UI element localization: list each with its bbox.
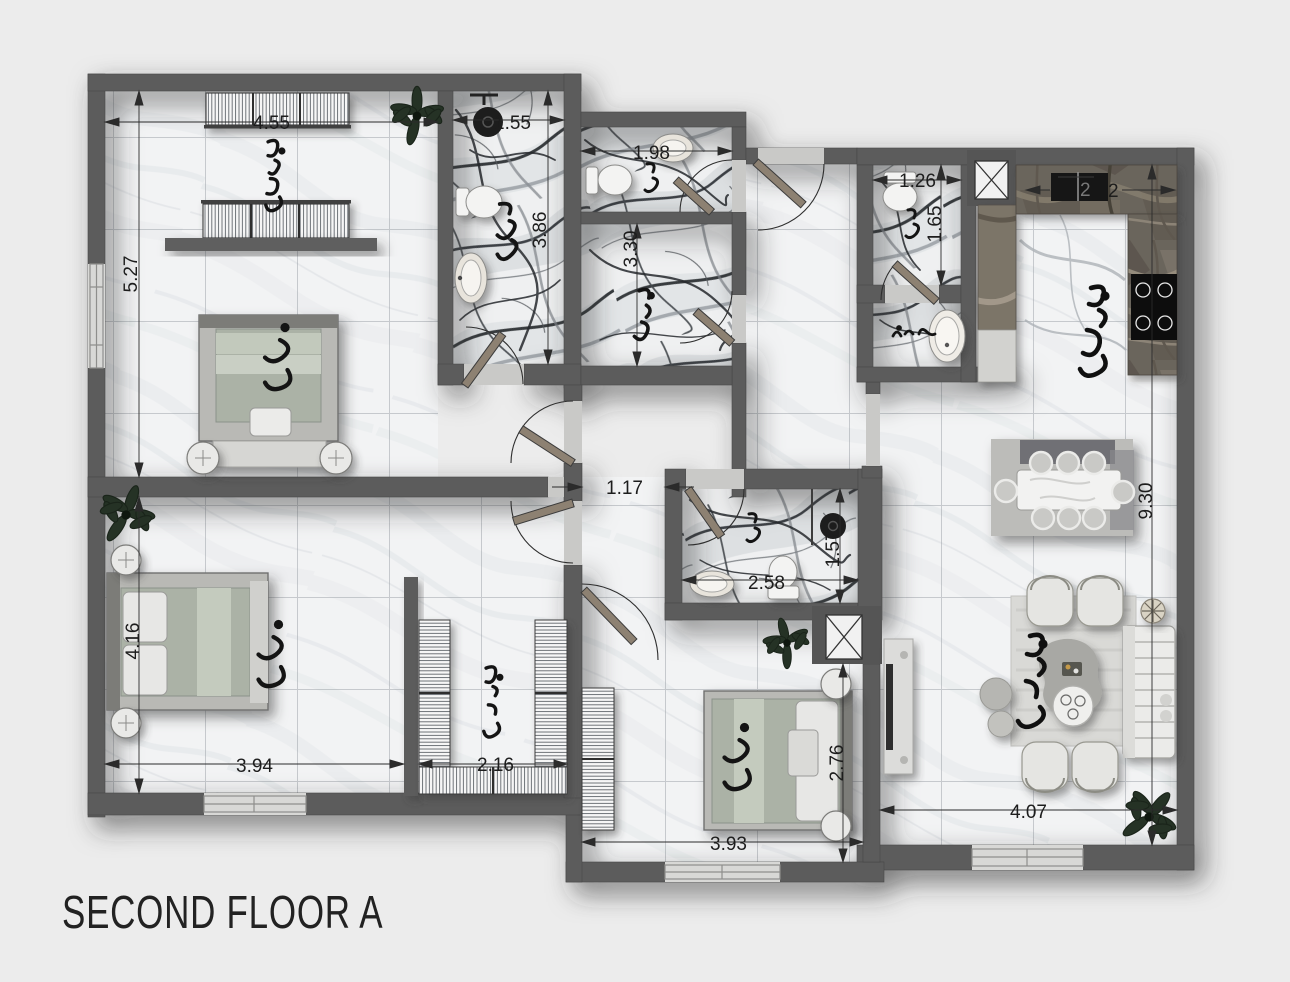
svg-text:3.94: 3.94 — [236, 756, 273, 777]
svg-text:5.27: 5.27 — [121, 256, 142, 293]
svg-text:2.58: 2.58 — [748, 573, 785, 594]
svg-text:4.07: 4.07 — [1010, 802, 1047, 823]
svg-text:4.55: 4.55 — [253, 113, 290, 134]
svg-text:2.16: 2.16 — [477, 755, 514, 776]
svg-text:4.16: 4.16 — [123, 623, 144, 660]
svg-text:1.17: 1.17 — [606, 478, 643, 499]
svg-text:2: 2 — [1108, 181, 1119, 202]
svg-text:1.26: 1.26 — [899, 171, 936, 192]
svg-text:1.98: 1.98 — [633, 143, 670, 164]
svg-text:9.30: 9.30 — [1136, 483, 1157, 520]
svg-text:3.30: 3.30 — [621, 231, 642, 268]
svg-text:SECOND FLOOR A: SECOND FLOOR A — [62, 886, 383, 938]
svg-text:3.86: 3.86 — [530, 212, 551, 249]
svg-text:1.57: 1.57 — [823, 531, 844, 568]
svg-text:2: 2 — [1080, 180, 1091, 201]
svg-text:1.65: 1.65 — [925, 206, 946, 243]
svg-text:3.93: 3.93 — [710, 834, 747, 855]
svg-text:1.55: 1.55 — [494, 113, 531, 134]
svg-text:2.76: 2.76 — [827, 745, 848, 782]
